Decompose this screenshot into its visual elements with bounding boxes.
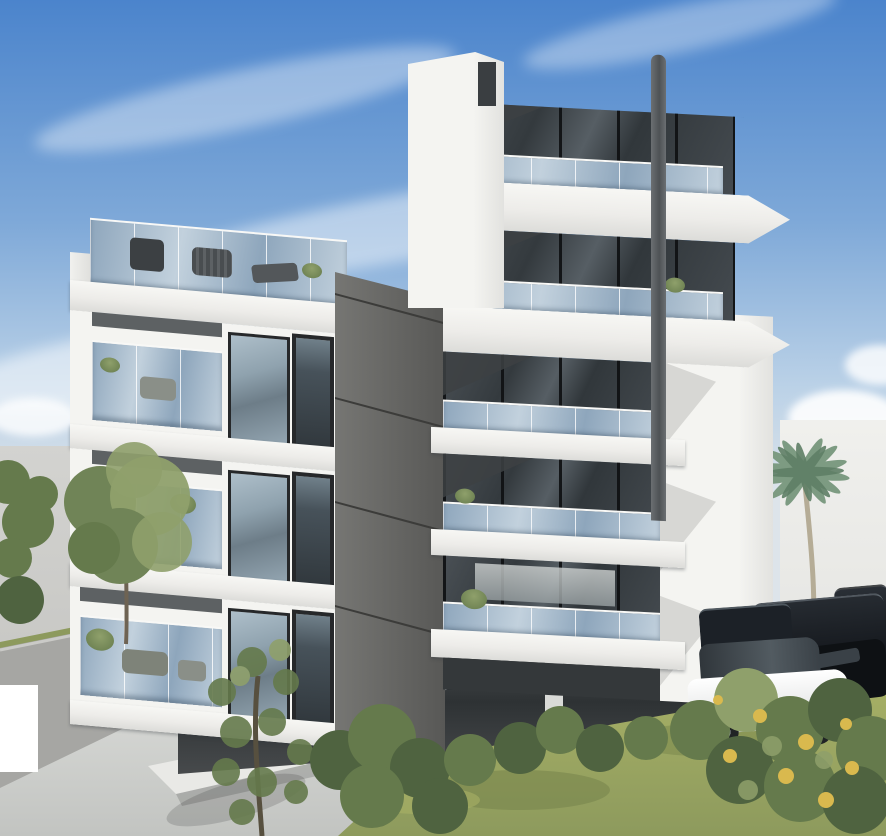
left-edge-bushes — [0, 460, 58, 624]
architectural-render — [0, 0, 886, 836]
vegetation — [0, 0, 886, 836]
watermark-box — [0, 685, 38, 772]
center-bushes — [310, 704, 668, 834]
right-shrub-yellow-flowers — [670, 668, 886, 834]
tree-mid-left — [64, 442, 192, 644]
foreground-tree — [208, 639, 313, 836]
